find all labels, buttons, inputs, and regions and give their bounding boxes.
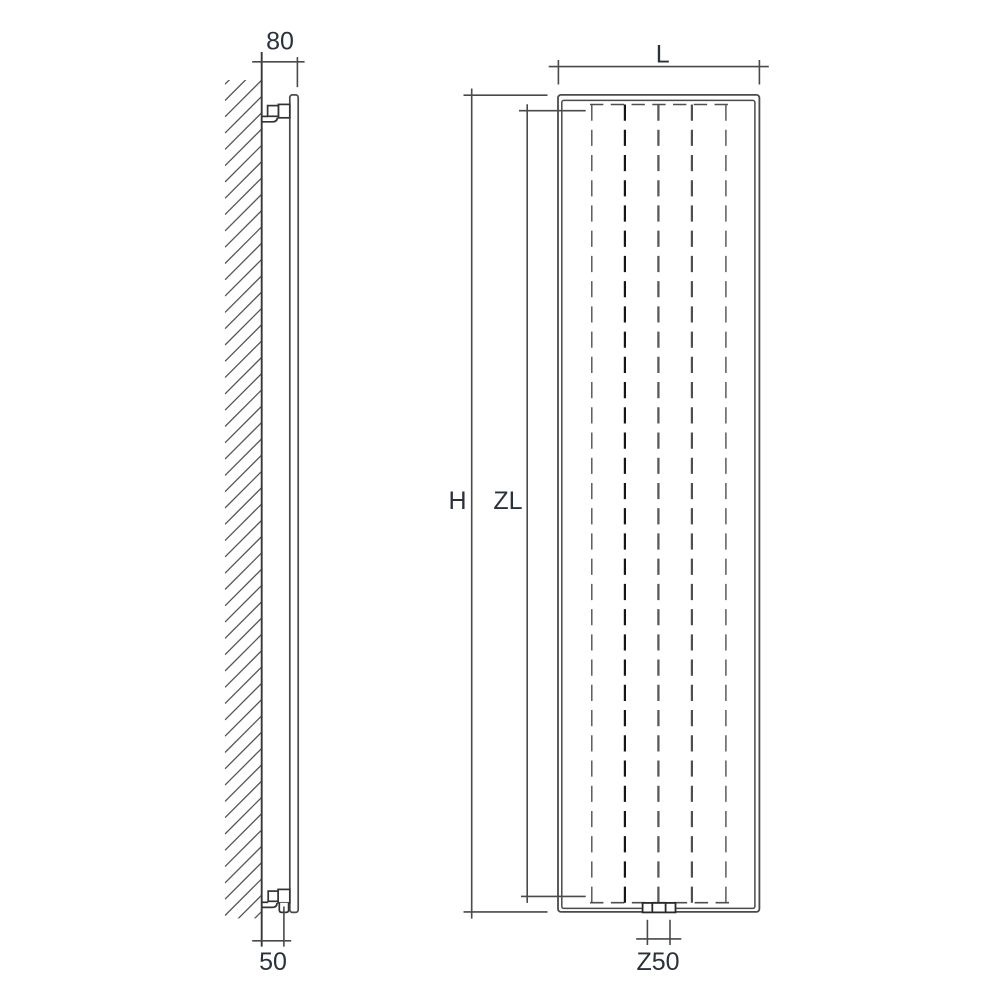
svg-text:80: 80: [266, 28, 294, 56]
svg-text:50: 50: [259, 948, 287, 976]
svg-text:ZL: ZL: [493, 487, 522, 515]
svg-text:H: H: [448, 487, 466, 515]
svg-text:L: L: [656, 41, 670, 69]
svg-text:Z50: Z50: [636, 948, 679, 976]
